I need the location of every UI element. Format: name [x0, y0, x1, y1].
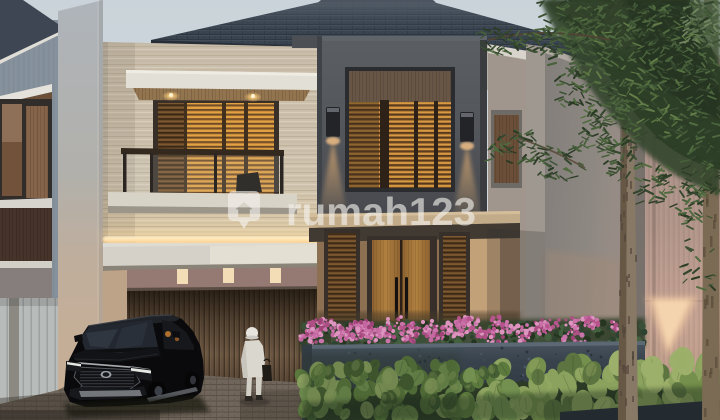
svg-text:rumah123: rumah123 — [286, 191, 476, 234]
